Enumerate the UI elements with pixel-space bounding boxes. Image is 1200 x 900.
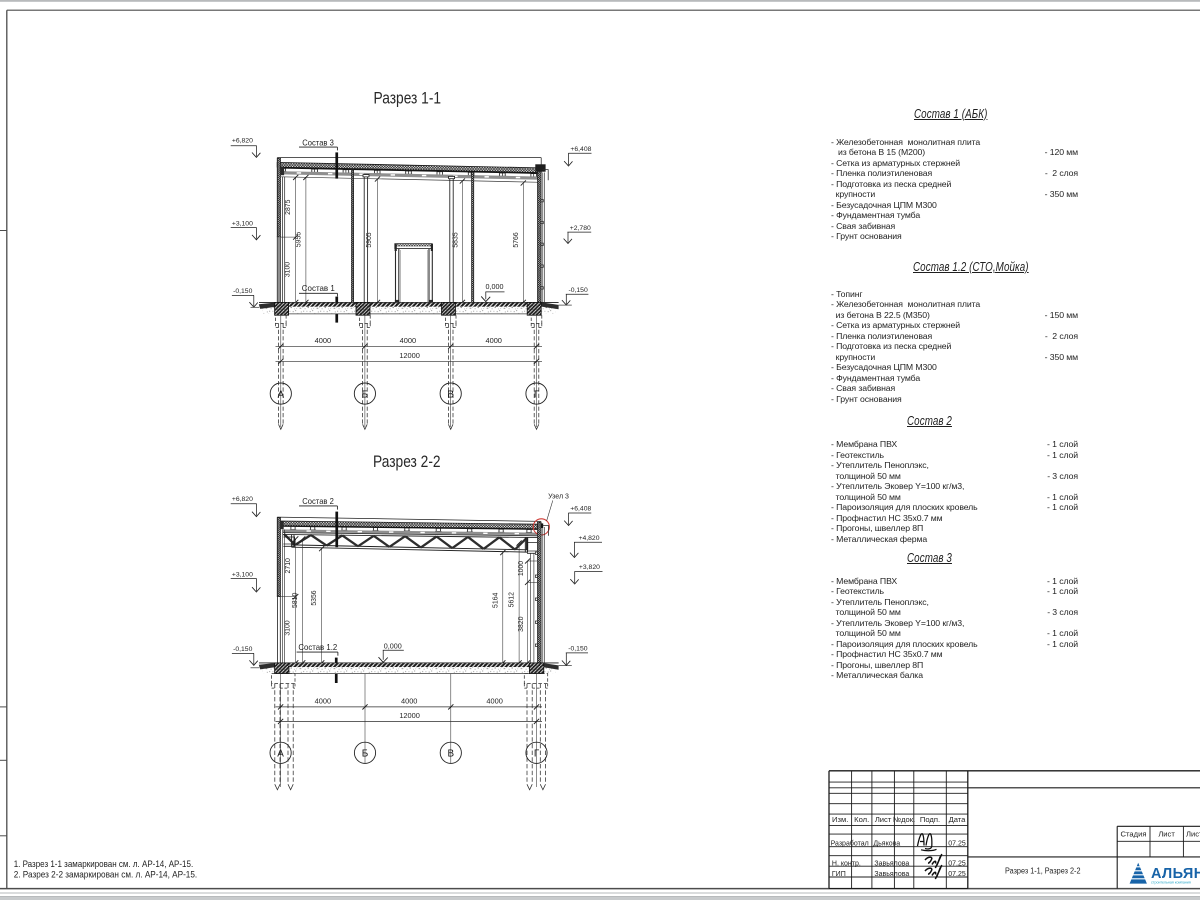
svg-text:-0,150: -0,150	[568, 646, 587, 653]
svg-text:Дьякова: Дьякова	[873, 840, 900, 847]
svg-text:4000: 4000	[315, 336, 331, 345]
svg-text:Дата: Дата	[949, 815, 967, 824]
svg-text:В: В	[448, 749, 455, 760]
svg-text:4000: 4000	[401, 697, 417, 706]
svg-text:Узел 3: Узел 3	[548, 494, 569, 501]
svg-text:+6,408: +6,408	[570, 506, 591, 513]
svg-text:Состав 1.2: Состав 1.2	[298, 643, 337, 652]
svg-text:А: А	[278, 389, 285, 400]
svg-text:2875: 2875	[285, 199, 292, 214]
svg-text:Разрез 1-1, Разрез 2-2: Разрез 1-1, Разрез 2-2	[1005, 865, 1081, 875]
svg-text:Разрез 2-2: Разрез 2-2	[373, 453, 441, 471]
svg-text:Б: Б	[362, 389, 368, 400]
svg-text:3100: 3100	[285, 620, 292, 635]
svg-text:-0,150: -0,150	[233, 646, 252, 653]
svg-text:3820: 3820	[518, 616, 525, 631]
svg-text:строительная компания: строительная компания	[1151, 881, 1191, 885]
svg-text:Стадия: Стадия	[1121, 830, 1147, 839]
svg-text:Состав 1: Состав 1	[302, 284, 335, 293]
svg-text:-0,150: -0,150	[568, 287, 587, 294]
svg-text:4000: 4000	[485, 336, 501, 345]
svg-text:Н. контр.: Н. контр.	[832, 860, 861, 867]
svg-text:5810: 5810	[292, 592, 299, 607]
svg-text:5356: 5356	[311, 590, 318, 605]
svg-text:4000: 4000	[486, 697, 502, 706]
svg-text:-0,150: -0,150	[233, 288, 252, 295]
svg-text:0,000: 0,000	[486, 282, 504, 291]
svg-text:5905: 5905	[366, 232, 373, 247]
svg-text:Разрез 1-1: Разрез 1-1	[374, 89, 442, 107]
svg-text:Листов: Листов	[1186, 830, 1200, 839]
svg-text:Лист: Лист	[875, 815, 892, 824]
svg-text:Завьялова: Завьялова	[874, 871, 909, 878]
svg-text:2. Разрез 2-2 замаркирован см.: 2. Разрез 2-2 замаркирован см. л. АР-14,…	[14, 869, 198, 880]
svg-text:А: А	[277, 749, 284, 760]
svg-text:1. Разрез 1-1 замаркирован см.: 1. Разрез 1-1 замаркирован см. л. АР-14,…	[14, 859, 194, 870]
svg-text:5766: 5766	[513, 232, 520, 247]
svg-text:+4,820: +4,820	[579, 535, 600, 542]
svg-text:3100: 3100	[285, 262, 292, 277]
svg-text:2710: 2710	[285, 558, 292, 573]
svg-text:Подп.: Подп.	[920, 815, 940, 824]
svg-text:+3,100: +3,100	[232, 220, 253, 227]
svg-text:07.25: 07.25	[948, 840, 966, 847]
svg-text:07.25: 07.25	[948, 860, 966, 867]
svg-text:Завьялова: Завьялова	[874, 860, 909, 867]
svg-text:5164: 5164	[492, 592, 499, 607]
svg-text:Изм.: Изм.	[832, 815, 848, 824]
svg-text:В: В	[447, 389, 454, 400]
svg-text:07.25: 07.25	[948, 871, 966, 878]
svg-text:Состав 3: Состав 3	[302, 139, 334, 148]
svg-text:+3,820: +3,820	[579, 564, 600, 571]
svg-text:12000: 12000	[399, 711, 420, 720]
svg-text:+6,820: +6,820	[232, 138, 253, 145]
svg-text:5835: 5835	[453, 232, 460, 247]
svg-text:Б: Б	[362, 749, 368, 760]
svg-text:+3,100: +3,100	[232, 571, 253, 578]
svg-text:+2,780: +2,780	[570, 225, 591, 232]
svg-text:4000: 4000	[400, 336, 416, 345]
svg-text:+6,820: +6,820	[232, 496, 253, 503]
svg-text:Разработал: Разработал	[831, 839, 869, 847]
svg-text:Г: Г	[534, 389, 540, 400]
svg-text:5612: 5612	[509, 592, 516, 607]
svg-text:АЛЬЯНС: АЛЬЯНС	[1151, 866, 1200, 882]
svg-text:Состав 2: Состав 2	[302, 497, 334, 506]
svg-text:Г: Г	[534, 749, 540, 760]
svg-text:1000: 1000	[518, 561, 525, 576]
svg-text:0,000: 0,000	[384, 641, 402, 650]
svg-text:12000: 12000	[399, 351, 420, 360]
svg-text:№док.: №док.	[893, 815, 915, 824]
svg-text:5955: 5955	[295, 232, 302, 247]
svg-text:+6,408: +6,408	[570, 146, 591, 153]
svg-text:ГИП: ГИП	[832, 871, 846, 878]
svg-text:4000: 4000	[315, 697, 331, 706]
svg-text:Лист: Лист	[1158, 830, 1175, 839]
svg-text:Кол.: Кол.	[854, 815, 869, 824]
